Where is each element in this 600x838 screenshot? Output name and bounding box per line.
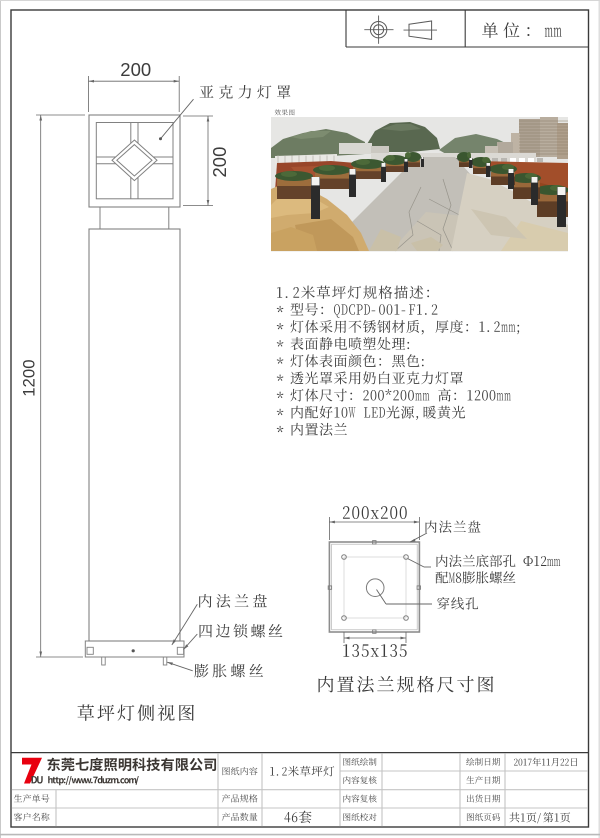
svg-text:1200: 1200 bbox=[20, 359, 39, 396]
svg-text:200: 200 bbox=[120, 59, 151, 80]
svg-text:200: 200 bbox=[209, 147, 230, 178]
